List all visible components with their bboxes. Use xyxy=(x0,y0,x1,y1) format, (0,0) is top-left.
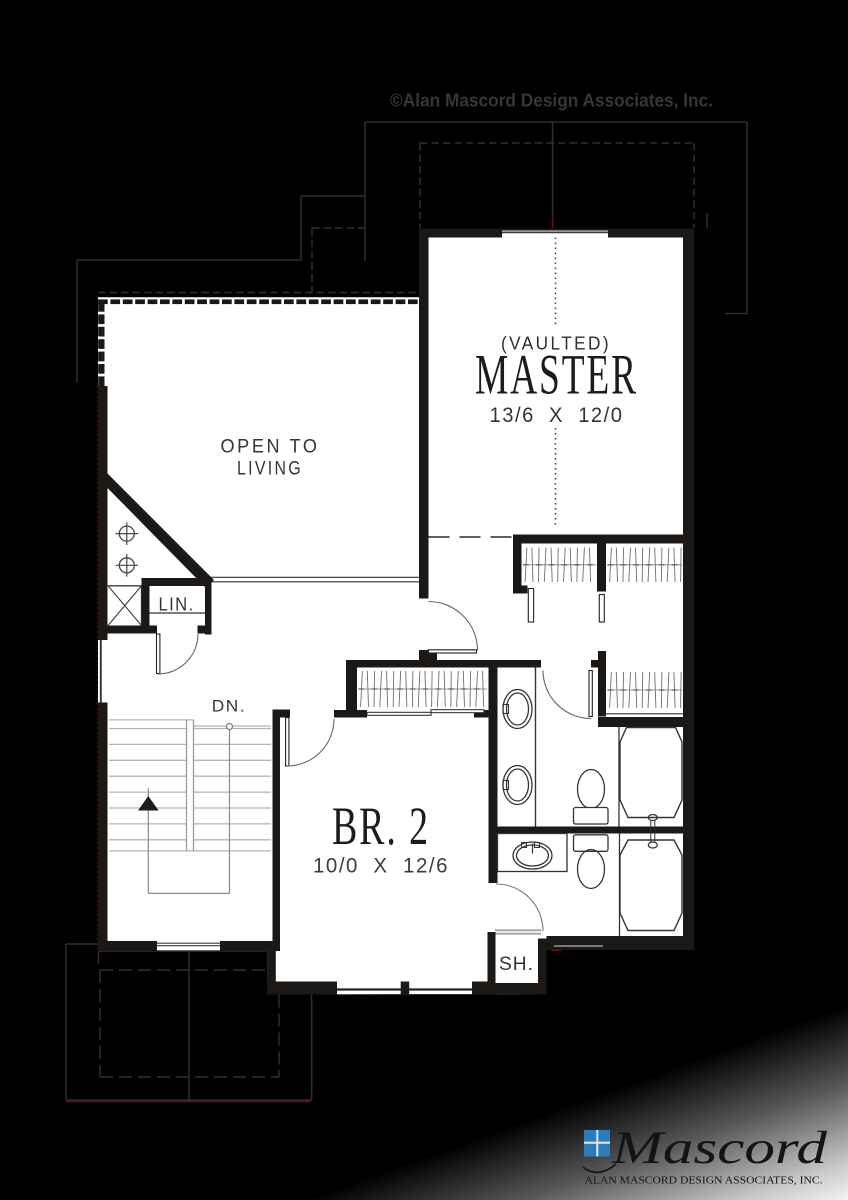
svg-text:OPEN TO: OPEN TO xyxy=(221,436,320,458)
svg-text:LIN.: LIN. xyxy=(159,594,195,615)
svg-text:10/0 X 12/6: 10/0 X 12/6 xyxy=(313,854,449,878)
svg-text:13/6 X 12/0: 13/6 X 12/0 xyxy=(490,403,624,427)
svg-text:MASTER: MASTER xyxy=(475,343,638,407)
svg-text:DN.: DN. xyxy=(212,698,247,716)
svg-text:ALAN MASCORD DESIGN ASSOCIATES: ALAN MASCORD DESIGN ASSOCIATES, INC. xyxy=(585,1175,823,1187)
svg-text:©Alan Mascord Design Associate: ©Alan Mascord Design Associates, Inc. xyxy=(390,90,713,111)
svg-text:LIVING: LIVING xyxy=(237,458,303,480)
svg-text:BR. 2: BR. 2 xyxy=(332,796,430,856)
svg-text:Mascord: Mascord xyxy=(611,1122,828,1174)
svg-text:SH.: SH. xyxy=(499,954,534,975)
